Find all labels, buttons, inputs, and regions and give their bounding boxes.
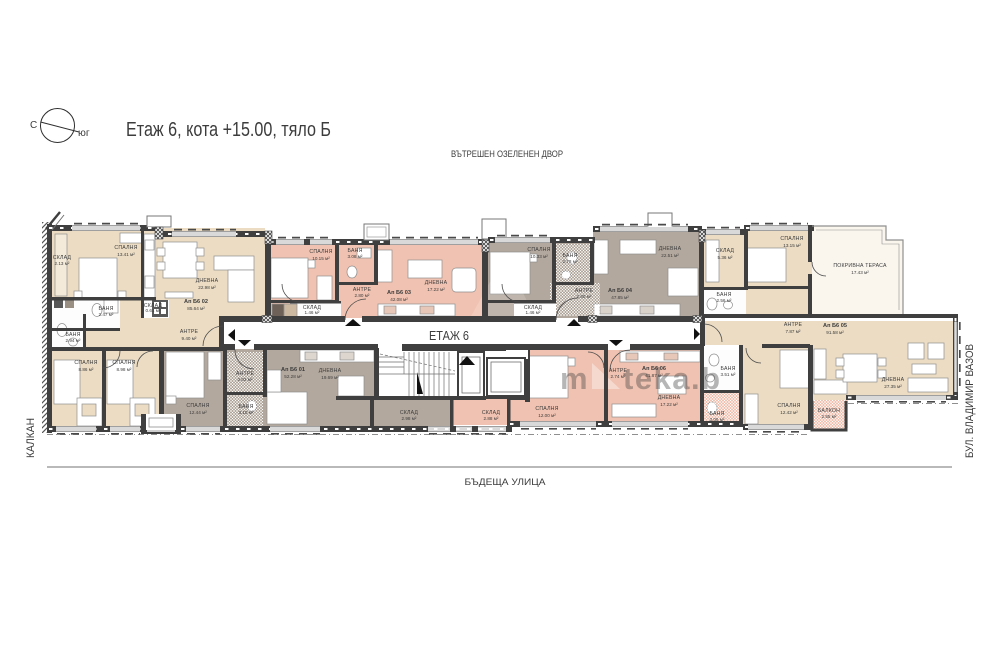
- svg-text:Ап Б6 06: Ап Б6 06: [642, 366, 666, 372]
- svg-text:0.61 м²: 0.61 м²: [146, 308, 161, 313]
- svg-text:БЪДЕЩА УЛИЦА: БЪДЕЩА УЛИЦА: [465, 477, 546, 487]
- svg-text:СПАЛНЯ: СПАЛНЯ: [186, 403, 209, 409]
- svg-text:3.03 м²: 3.03 м²: [238, 377, 253, 382]
- svg-text:12.44 м²: 12.44 м²: [189, 410, 207, 415]
- svg-text:СПАЛНЯ: СПАЛНЯ: [309, 249, 332, 255]
- svg-text:13.41 м²: 13.41 м²: [117, 252, 135, 257]
- svg-text:Етаж 6, кота +15.00, тяло Б: Етаж 6, кота +15.00, тяло Б: [126, 118, 331, 141]
- svg-text:12.00 м²: 12.00 м²: [538, 413, 556, 418]
- svg-text:17.22 м²: 17.22 м²: [660, 402, 678, 407]
- svg-text:2.55 м²: 2.55 м²: [822, 414, 837, 419]
- svg-text:8.98 м²: 8.98 м²: [117, 367, 132, 372]
- svg-text:22.51 м²: 22.51 м²: [661, 253, 679, 258]
- svg-text:СПАЛНЯ: СПАЛНЯ: [777, 403, 800, 409]
- svg-text:12.42 м²: 12.42 м²: [780, 410, 798, 415]
- svg-text:2.94 м²: 2.94 м²: [66, 338, 81, 343]
- svg-text:19.69 м²: 19.69 м²: [321, 375, 339, 380]
- svg-text:юг: юг: [78, 127, 90, 139]
- svg-text:2.98 м²: 2.98 м²: [402, 416, 417, 421]
- svg-text:m: m: [560, 361, 589, 396]
- svg-text:17.43 м²: 17.43 м²: [851, 270, 869, 275]
- svg-text:2.56 м²: 2.56 м²: [717, 298, 732, 303]
- svg-text:ДНЕВНА: ДНЕВНА: [659, 246, 682, 252]
- svg-text:3.10 м²: 3.10 м²: [239, 410, 254, 415]
- svg-text:Ап Б6 01: Ап Б6 01: [281, 367, 305, 373]
- svg-text:1.46 м²: 1.46 м²: [526, 310, 541, 315]
- svg-text:Ап Б6 05: Ап Б6 05: [823, 323, 847, 329]
- svg-text:СПАЛНЯ: СПАЛНЯ: [780, 236, 803, 242]
- svg-text:ДНЕВНА: ДНЕВНА: [425, 280, 448, 286]
- svg-text:8.86 м²: 8.86 м²: [79, 367, 94, 372]
- svg-text:3.06 м²: 3.06 м²: [710, 417, 725, 422]
- svg-text:10.15 м²: 10.15 м²: [312, 256, 330, 261]
- svg-text:17.22 м²: 17.22 м²: [427, 287, 445, 292]
- svg-text:85.64 м²: 85.64 м²: [187, 306, 205, 311]
- svg-text:3.08 м²: 3.08 м²: [348, 254, 363, 259]
- svg-text:2.47 м²: 2.47 м²: [99, 312, 114, 317]
- svg-text:27.35 м²: 27.35 м²: [884, 384, 902, 389]
- svg-text:СПАЛНЯ: СПАЛНЯ: [74, 360, 97, 366]
- svg-text:АНТРЕ: АНТРЕ: [784, 322, 803, 328]
- svg-text:91.58 м²: 91.58 м²: [826, 330, 844, 335]
- svg-text:2.88 м²: 2.88 м²: [484, 416, 499, 421]
- svg-text:2.80 м²: 2.80 м²: [577, 294, 592, 299]
- svg-text:СПАЛНЯ: СПАЛНЯ: [112, 360, 135, 366]
- svg-text:5.36 м²: 5.36 м²: [718, 255, 733, 260]
- svg-text:С: С: [30, 120, 37, 131]
- svg-text:41.87 м²: 41.87 м²: [645, 373, 663, 378]
- svg-text:7.87 м²: 7.87 м²: [786, 329, 801, 334]
- svg-text:АНТРЕ: АНТРЕ: [180, 329, 199, 335]
- svg-text:2.13 м²: 2.13 м²: [55, 261, 70, 266]
- svg-text:СКЛАД: СКЛАД: [716, 248, 735, 254]
- svg-text:ВЪТРЕШЕН ОЗЕЛЕНЕН ДВОР: ВЪТРЕШЕН ОЗЕЛЕНЕН ДВОР: [451, 149, 563, 159]
- svg-text:ДНЕВНА: ДНЕВНА: [882, 377, 905, 383]
- svg-text:СПАЛНЯ: СПАЛНЯ: [535, 406, 558, 412]
- svg-text:1.46 м²: 1.46 м²: [305, 310, 320, 315]
- svg-text:СПАЛНЯ: СПАЛНЯ: [527, 247, 550, 253]
- svg-text:13.15 м²: 13.15 м²: [783, 243, 801, 248]
- svg-text:Ап Б6 03: Ап Б6 03: [387, 290, 411, 296]
- svg-text:47.85 м²: 47.85 м²: [611, 295, 629, 300]
- svg-text:ПОКРИВНА ТЕРАСА: ПОКРИВНА ТЕРАСА: [833, 263, 887, 269]
- svg-text:БУЛ. ВЛАДИМИР ВАЗОВ: БУЛ. ВЛАДИМИР ВАЗОВ: [964, 344, 976, 458]
- svg-text:ЕТАЖ 6: ЕТАЖ 6: [429, 329, 469, 343]
- svg-text:2.80 м²: 2.80 м²: [355, 293, 370, 298]
- svg-text:ДНЕВНА: ДНЕВНА: [319, 368, 342, 374]
- svg-text:Ап Б6 02: Ап Б6 02: [184, 299, 208, 305]
- svg-text:ДНЕВНА: ДНЕВНА: [658, 395, 681, 401]
- svg-text:9.40 м²: 9.40 м²: [182, 336, 197, 341]
- svg-text:2.74 м²: 2.74 м²: [611, 374, 626, 379]
- svg-text:3.51 м²: 3.51 м²: [721, 372, 736, 377]
- svg-text:КАЛКАН: КАЛКАН: [25, 418, 37, 458]
- svg-text:42.08 м²: 42.08 м²: [390, 297, 408, 302]
- svg-text:Ап Б6 04: Ап Б6 04: [608, 288, 633, 294]
- svg-text:2.78 м²: 2.78 м²: [563, 259, 578, 264]
- svg-text:52.28 м²: 52.28 м²: [284, 374, 302, 379]
- svg-text:ДНЕВНА: ДНЕВНА: [196, 278, 219, 284]
- svg-text:СПАЛНЯ: СПАЛНЯ: [114, 245, 137, 251]
- svg-text:22.98 м²: 22.98 м²: [198, 285, 216, 290]
- svg-text:10.33 м²: 10.33 м²: [530, 254, 548, 259]
